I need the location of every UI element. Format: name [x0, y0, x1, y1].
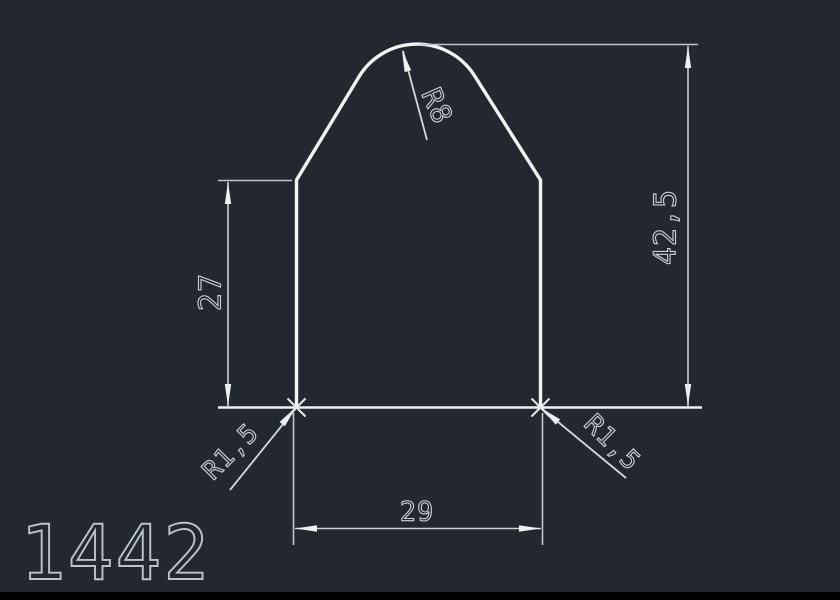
dim-42-5-label: 42,5: [649, 189, 684, 265]
footer-bar: [0, 592, 840, 600]
dim-27-label: 27: [194, 273, 229, 311]
cad-canvas: 27 42,5 29 R8 R1,5 R1,5 1442: [0, 0, 840, 600]
cad-viewport: 27 42,5 29 R8 R1,5 R1,5 1442: [0, 0, 840, 600]
part-number-label: 1442: [20, 508, 211, 597]
dim-29-label: 29: [400, 497, 435, 528]
